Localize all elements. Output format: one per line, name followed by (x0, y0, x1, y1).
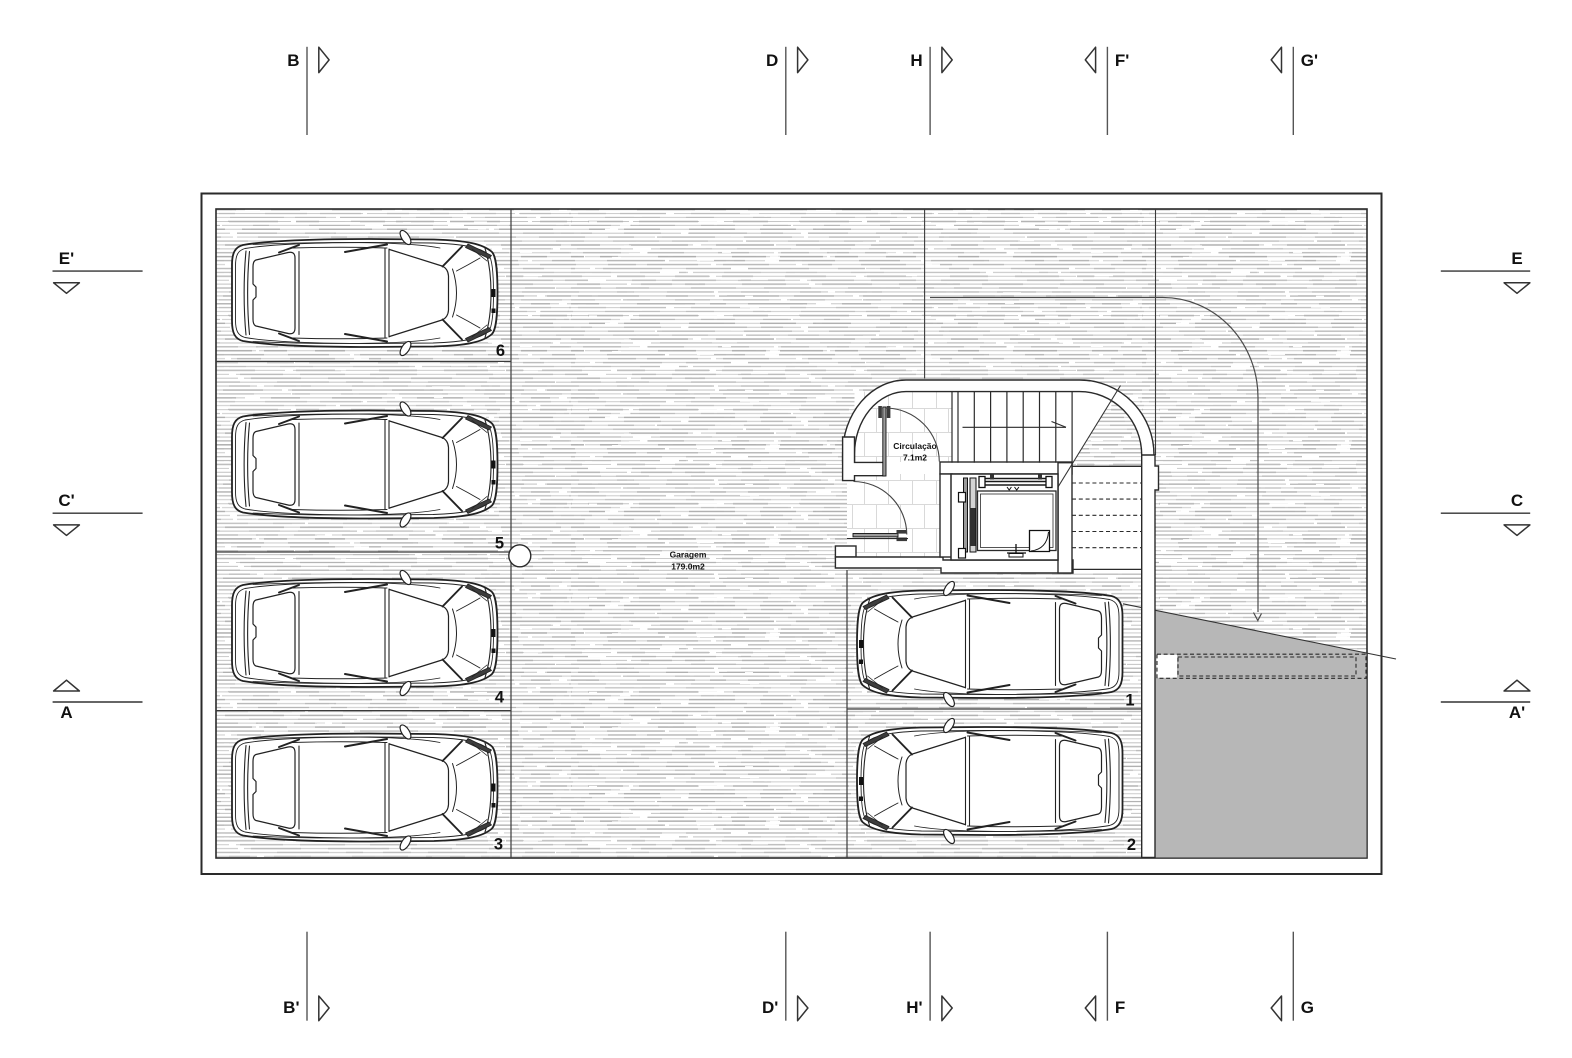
svg-text:A: A (60, 703, 72, 722)
svg-text:1: 1 (1125, 692, 1134, 710)
svg-text:B: B (287, 51, 299, 70)
svg-text:179.0m2: 179.0m2 (671, 562, 705, 572)
svg-text:7.1m2: 7.1m2 (903, 453, 927, 463)
svg-text:F': F' (1115, 51, 1129, 70)
svg-text:H: H (910, 51, 922, 70)
svg-text:D: D (766, 51, 778, 70)
svg-text:G: G (1301, 998, 1314, 1017)
svg-text:6: 6 (496, 342, 505, 360)
svg-text:5: 5 (495, 535, 504, 553)
svg-text:B': B' (283, 998, 299, 1017)
svg-text:H': H' (906, 998, 922, 1017)
svg-text:C': C' (58, 491, 74, 510)
svg-text:Garagem: Garagem (670, 550, 707, 560)
svg-text:D': D' (762, 998, 778, 1017)
svg-text:E': E' (59, 249, 74, 268)
svg-text:A': A' (1509, 703, 1525, 722)
svg-text:E: E (1511, 249, 1522, 268)
svg-text:C: C (1511, 491, 1523, 510)
svg-text:G': G' (1301, 51, 1318, 70)
svg-text:3: 3 (494, 836, 503, 854)
svg-text:F: F (1115, 998, 1125, 1017)
svg-text:Circulação: Circulação (893, 441, 936, 451)
svg-text:4: 4 (495, 689, 505, 707)
svg-text:2: 2 (1127, 836, 1136, 854)
